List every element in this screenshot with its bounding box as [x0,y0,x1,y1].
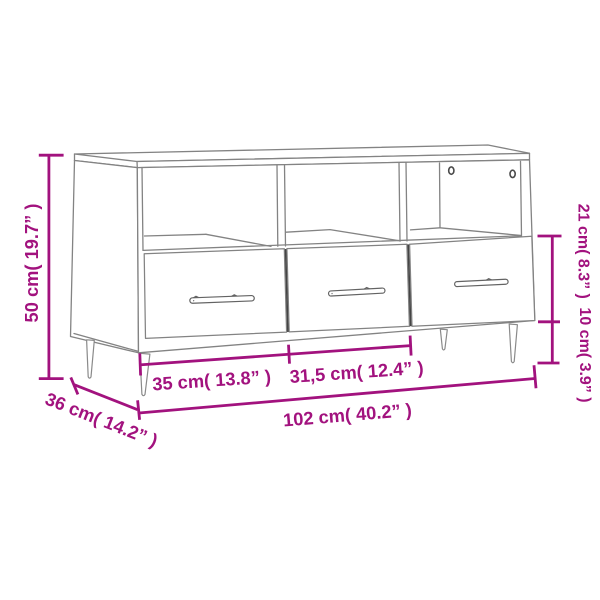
svg-text:21 cm( 8.3” ): 21 cm( 8.3” ) [574,204,591,299]
svg-text:50 cm( 19.7” ): 50 cm( 19.7” ) [21,204,42,323]
svg-text:10 cm( 3.9” ): 10 cm( 3.9” ) [576,307,593,402]
